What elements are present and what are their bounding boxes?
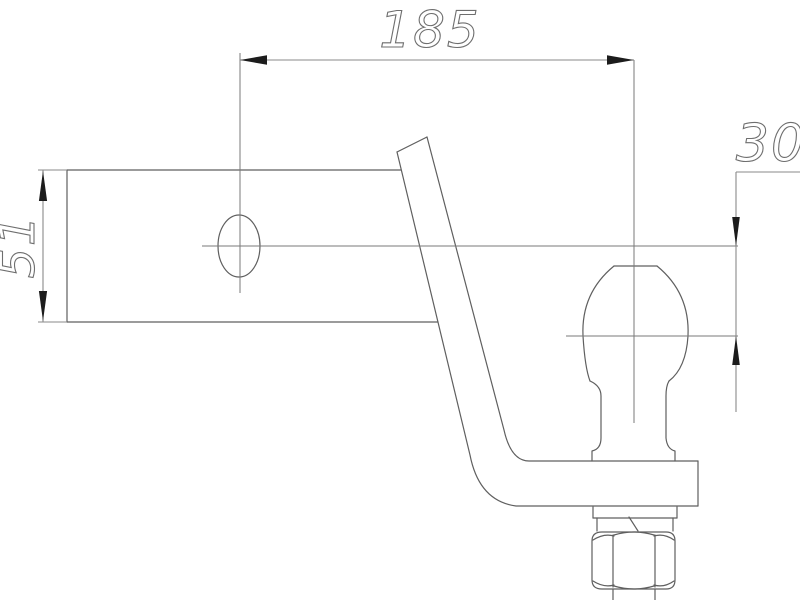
arm-inner-edge xyxy=(427,137,698,461)
arm-top-cap xyxy=(397,137,427,152)
dim-185-arrow-right xyxy=(607,55,634,65)
hitch-ball xyxy=(583,266,688,461)
centerlines xyxy=(202,53,738,423)
dim-30-arrow-down xyxy=(732,217,740,246)
stud-washer xyxy=(593,507,677,531)
arm-outer-edge xyxy=(397,152,698,506)
dim-185-arrow-left xyxy=(240,55,267,65)
dimension-185: 185 xyxy=(240,1,634,65)
dim-51-arrow-down xyxy=(39,291,47,321)
ball-left-profile xyxy=(583,266,614,381)
hex-nut xyxy=(592,532,675,600)
dimension-51: 51 xyxy=(0,170,67,322)
dim-30-arrow-up xyxy=(732,336,740,365)
neck-left-profile xyxy=(590,381,601,461)
bent-arm xyxy=(397,137,698,506)
hitch-ball-mount-drawing: 185 30 51 xyxy=(0,0,800,600)
ball-right-profile xyxy=(657,266,688,381)
dim-185-value: 185 xyxy=(379,1,480,59)
nut-bottom-chamfer-arcs xyxy=(593,581,674,589)
nut-outline xyxy=(592,532,675,589)
dimension-30: 30 xyxy=(732,114,800,412)
dim-51-value: 51 xyxy=(0,213,46,278)
nut-top-chamfer-arcs xyxy=(593,532,674,540)
dim-30-value: 30 xyxy=(736,114,800,174)
dim-51-arrow-up xyxy=(39,171,47,201)
neck-right-profile xyxy=(666,381,675,461)
drawing-page: 185 30 51 xyxy=(0,0,800,600)
thread-runout-line xyxy=(629,517,638,531)
